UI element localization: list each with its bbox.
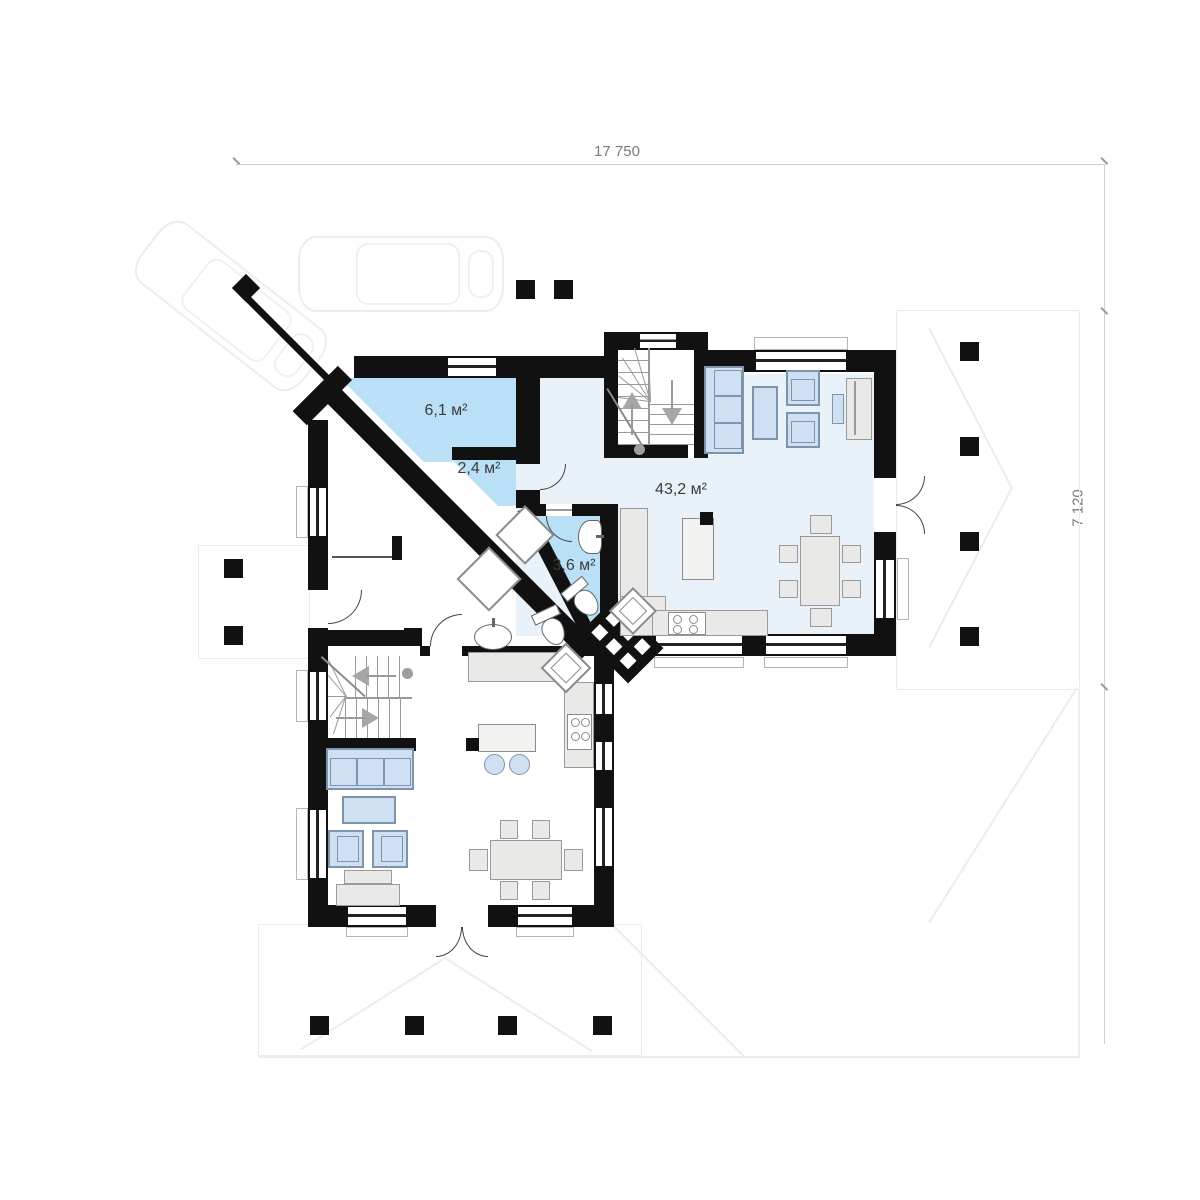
stairs-arrow-stem [366, 675, 396, 677]
shower-stall [456, 546, 521, 611]
dimension-width-label: 17 750 [594, 143, 640, 160]
stairs-arrow-stem [631, 405, 633, 435]
window-sill [346, 927, 408, 937]
stair-tread [618, 444, 650, 445]
tv-screen [832, 394, 844, 424]
kitchen-island [682, 518, 714, 580]
car-cabin [356, 243, 460, 305]
window [874, 560, 896, 618]
window [640, 332, 676, 350]
window-sill [516, 927, 574, 937]
armchair [786, 370, 820, 406]
chimney-hatch-cell [591, 624, 608, 641]
room-area-label: 6,1 м² [424, 402, 467, 420]
window [756, 350, 846, 372]
dining-chair [564, 849, 583, 871]
wall-segment [452, 447, 516, 460]
car-hood-line [468, 250, 494, 298]
room-area-label: 43,2 м² [655, 481, 707, 499]
tv-cabinet [336, 884, 400, 906]
window-sill [296, 486, 308, 538]
dining-chair [500, 881, 518, 900]
room-area-label: 3,6 м² [552, 557, 595, 575]
pillar-icon [310, 1016, 329, 1035]
burner [571, 732, 580, 741]
window-sill [654, 657, 744, 668]
window [594, 742, 614, 770]
sofa [326, 748, 414, 790]
stair-tread [389, 697, 390, 738]
dining-chair [842, 545, 861, 563]
kitchen-island [478, 724, 536, 752]
window [594, 808, 614, 866]
chimney-hatch-cell [605, 638, 622, 655]
burner [689, 615, 698, 624]
closet-partition [332, 556, 396, 558]
newel-post [634, 444, 645, 455]
island-sink-mark [700, 512, 713, 525]
wall-segment [392, 536, 402, 560]
dining-chair [842, 580, 861, 598]
window-sill [296, 808, 308, 880]
stairs-down-arrow-icon [662, 408, 682, 425]
sofa-cushion [714, 370, 742, 396]
dining-chair [532, 881, 550, 900]
pillar-icon [224, 626, 243, 645]
stair-tread [377, 656, 378, 697]
pillar-icon [224, 559, 243, 578]
bar-stool [509, 754, 530, 775]
window [518, 905, 572, 927]
burner [673, 625, 682, 634]
pillar-icon [960, 342, 979, 361]
sofa-cushion [714, 423, 742, 449]
washbasin-icon [474, 624, 512, 650]
faucet-icon [492, 618, 495, 627]
island-sink-mark [466, 738, 479, 751]
burner [571, 718, 580, 727]
faucet-icon [596, 535, 604, 538]
wc-door-leaf [430, 614, 462, 646]
window [308, 488, 328, 536]
pillar-icon [960, 627, 979, 646]
bathroom-door-line [546, 509, 572, 511]
pillar-icon [405, 1016, 424, 1035]
cooktop-icon [567, 714, 592, 750]
stair-tread [650, 444, 694, 445]
wc-door-opening [430, 646, 462, 656]
pillar-icon [516, 280, 535, 299]
window [594, 684, 614, 714]
armchair-seat [381, 836, 403, 862]
dining-table [490, 840, 562, 880]
dining-chair [779, 545, 798, 563]
newel-post [402, 668, 413, 679]
armchair-seat [791, 421, 815, 443]
car-outline [298, 236, 504, 312]
stairs-arrow-stem [671, 380, 673, 410]
stair-tread [388, 656, 389, 697]
dining-table [800, 536, 840, 606]
window-sill [897, 558, 909, 620]
window [348, 905, 406, 927]
pillar-icon [498, 1016, 517, 1035]
sofa-cushion [357, 758, 384, 786]
window [448, 356, 496, 378]
stair-tread [650, 434, 694, 435]
window-sill [754, 337, 848, 350]
burner [673, 615, 682, 624]
cooktop-icon [668, 612, 706, 635]
roof-line [258, 1056, 1080, 1058]
tv-cabinet [846, 378, 872, 440]
sink-basin [550, 652, 581, 683]
coffee-table [752, 386, 778, 440]
pillar-icon [960, 437, 979, 456]
wall-segment [516, 356, 540, 464]
chimney-hatch-cell [634, 638, 651, 655]
window-sill [764, 657, 848, 668]
window [766, 634, 846, 656]
stair-tread [618, 372, 650, 373]
pillar-icon [593, 1016, 612, 1035]
dining-chair [779, 580, 798, 598]
dining-chair [810, 515, 832, 534]
roof-hip-line [929, 687, 1078, 923]
tv-cabinet-line [854, 381, 856, 435]
coffee-table [342, 796, 396, 824]
terrace-door-opening [874, 476, 896, 534]
burner [689, 625, 698, 634]
chimney-hatch-cell [620, 652, 637, 669]
room-area-label: 2,4 м² [457, 460, 500, 478]
entrance-door-opening [436, 905, 488, 927]
burner [581, 732, 590, 741]
terrace-outline-right [896, 310, 1080, 690]
armchair [328, 830, 364, 868]
sink-basin [619, 597, 647, 625]
stair-tread [400, 697, 401, 738]
pillar-icon [554, 280, 573, 299]
window [656, 634, 742, 656]
dining-chair [532, 820, 550, 839]
dining-chair [500, 820, 518, 839]
stair-tread [399, 656, 400, 697]
window [308, 672, 328, 720]
window [308, 810, 328, 878]
dining-chair [810, 608, 832, 627]
wall-segment [404, 628, 422, 646]
car-cabin [176, 254, 296, 367]
roof-line [1078, 690, 1080, 1056]
burner [581, 718, 590, 727]
armchair [786, 412, 820, 448]
dining-chair [469, 849, 488, 871]
window-sill [296, 670, 308, 722]
armchair-seat [337, 836, 359, 862]
armchair [372, 830, 408, 868]
armchair-seat [791, 379, 815, 401]
bar-stool [484, 754, 505, 775]
stairs-arrow-stem [336, 717, 366, 719]
floor-plan: 17 750 7 120 [0, 0, 1200, 1200]
sofa-cushion [384, 758, 411, 786]
pillar-icon [960, 532, 979, 551]
dimension-line-top [236, 164, 1104, 165]
wall-segment [604, 444, 688, 458]
stairwell-floor-upper [604, 332, 708, 458]
sofa-cushion [714, 396, 742, 423]
porch-outline-left [198, 545, 310, 659]
stair-tread [618, 420, 650, 421]
sofa [704, 366, 744, 454]
sofa-cushion [330, 758, 357, 786]
dimension-line-right [1104, 164, 1105, 1044]
tv-cabinet-top [344, 870, 392, 884]
side-door-leaf [328, 590, 362, 624]
